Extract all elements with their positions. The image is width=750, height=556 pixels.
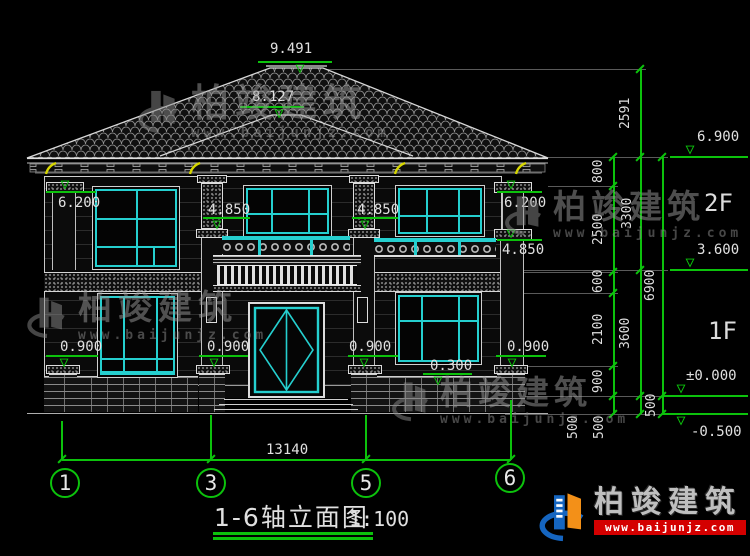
level-symbol-icon: ▽ [499, 355, 525, 370]
axis-bubble-6: 6 [495, 463, 525, 493]
footer-logo-icon [536, 486, 590, 544]
window-2f-left [92, 186, 180, 270]
level-symbol-icon: ▽ [351, 355, 377, 370]
level-value: 0.900 [507, 340, 549, 354]
window-1f-right [395, 292, 482, 365]
window-1f-left [97, 293, 178, 378]
window-2f-balcony [243, 185, 332, 237]
level-symbol-icon: ▽ [352, 217, 378, 232]
level-symbol-icon: ▽ [498, 226, 524, 241]
entry-step [214, 409, 358, 410]
axis-bubble-1: 1 [50, 468, 80, 498]
balcony-railing-right [374, 238, 496, 258]
axis-line-1 [61, 421, 63, 460]
dimension-value: 2100 [591, 293, 606, 366]
dimension-value: 600 [591, 272, 606, 293]
entry-door-diamond-glazing [250, 304, 323, 396]
eave-soffit-rafters [30, 164, 545, 172]
parapet-pier [199, 374, 225, 412]
dimension-value: 500 [592, 412, 607, 442]
porch-base-band [213, 285, 361, 292]
dimension-value: 6900 [643, 157, 658, 414]
level-value: 6.200 [504, 196, 546, 210]
entry-step [224, 399, 348, 400]
dimension-value: 3300 [620, 157, 635, 270]
dimension-value: 500 [566, 412, 581, 442]
level-value: 6.200 [58, 196, 100, 210]
drawing-scale: 1:100 [349, 509, 409, 529]
title-underline [213, 532, 373, 535]
level-symbol-icon: ▽ [201, 355, 227, 370]
footer-url-banner: www.baijunjz.com [594, 520, 746, 535]
level-value: 0.900 [349, 340, 391, 354]
level-value: 4.850 [208, 203, 250, 217]
wall-slit-window [357, 297, 368, 323]
level-symbol-icon: ▽ [498, 177, 524, 192]
footer-brand-text: 柏竣建筑 [594, 486, 746, 519]
floor-label-1f: 1F [708, 317, 737, 345]
wall-slit-window [206, 297, 217, 323]
dimension-value: 2591 [618, 69, 633, 157]
level-symbol-icon: ▽ [51, 355, 77, 370]
level-value: ±0.000 [686, 369, 737, 383]
overall-dimension-line [62, 459, 511, 461]
pilaster-cap [349, 175, 379, 183]
dimension-chain-line [662, 157, 664, 414]
axis-bubble-3: 3 [196, 468, 226, 498]
dimension-value: 3600 [618, 270, 633, 396]
dimension-chain-line [613, 157, 615, 414]
porch-cornice [213, 255, 361, 265]
level-value: 4.850 [502, 243, 544, 257]
level-symbol-icon: ▽ [287, 61, 313, 76]
entry-step [219, 404, 353, 405]
dimension-value: 900 [591, 366, 606, 396]
parapet-pier [49, 374, 77, 412]
title-underline [213, 537, 373, 540]
level-value: 8.127 [252, 90, 294, 104]
level-symbol-icon: ▽ [204, 217, 230, 232]
dimension-chain-line [640, 69, 642, 414]
dimension-value: 2500 [591, 186, 606, 272]
level-value: -0.500 [691, 425, 742, 439]
level-value: 0.300 [430, 359, 472, 373]
level-symbol-icon: ▽ [425, 373, 451, 388]
level-symbol-icon: ▽ [52, 177, 78, 192]
footer-brand-logo: 柏竣建筑 www.baijunjz.com [536, 486, 746, 544]
window-2f-right [395, 185, 485, 237]
porch-baluster-band [217, 265, 357, 285]
level-value: 0.900 [60, 340, 102, 354]
drawing-title: 1-6轴立面图 [214, 505, 369, 530]
level-value: 0.900 [207, 340, 249, 354]
elevation-drawing-canvas: 13140 1 3 5 6 2F 1F 1-6轴立面图 1:100 柏竣建筑 w… [0, 0, 750, 556]
floor-label-2f: 2F [704, 189, 733, 217]
pilaster-cap [197, 175, 227, 183]
axis-line-3 [210, 415, 212, 460]
level-value: 6.900 [697, 130, 739, 144]
level-value: 3.600 [697, 243, 739, 257]
ground-line [27, 413, 548, 414]
axis-line-5 [365, 415, 367, 460]
axis-line-6 [510, 400, 512, 460]
entry-door-architrave [248, 302, 325, 398]
level-value: 4.850 [357, 203, 399, 217]
dimension-value: 800 [591, 157, 606, 186]
footer-url-text: www.baijunjz.com [605, 521, 735, 534]
axis-bubble-5: 5 [351, 468, 381, 498]
overall-width-dimension: 13140 [266, 443, 308, 457]
parapet-pier [351, 374, 377, 412]
level-value: 9.491 [270, 42, 312, 56]
level-symbol-icon: ▽ [266, 106, 292, 121]
